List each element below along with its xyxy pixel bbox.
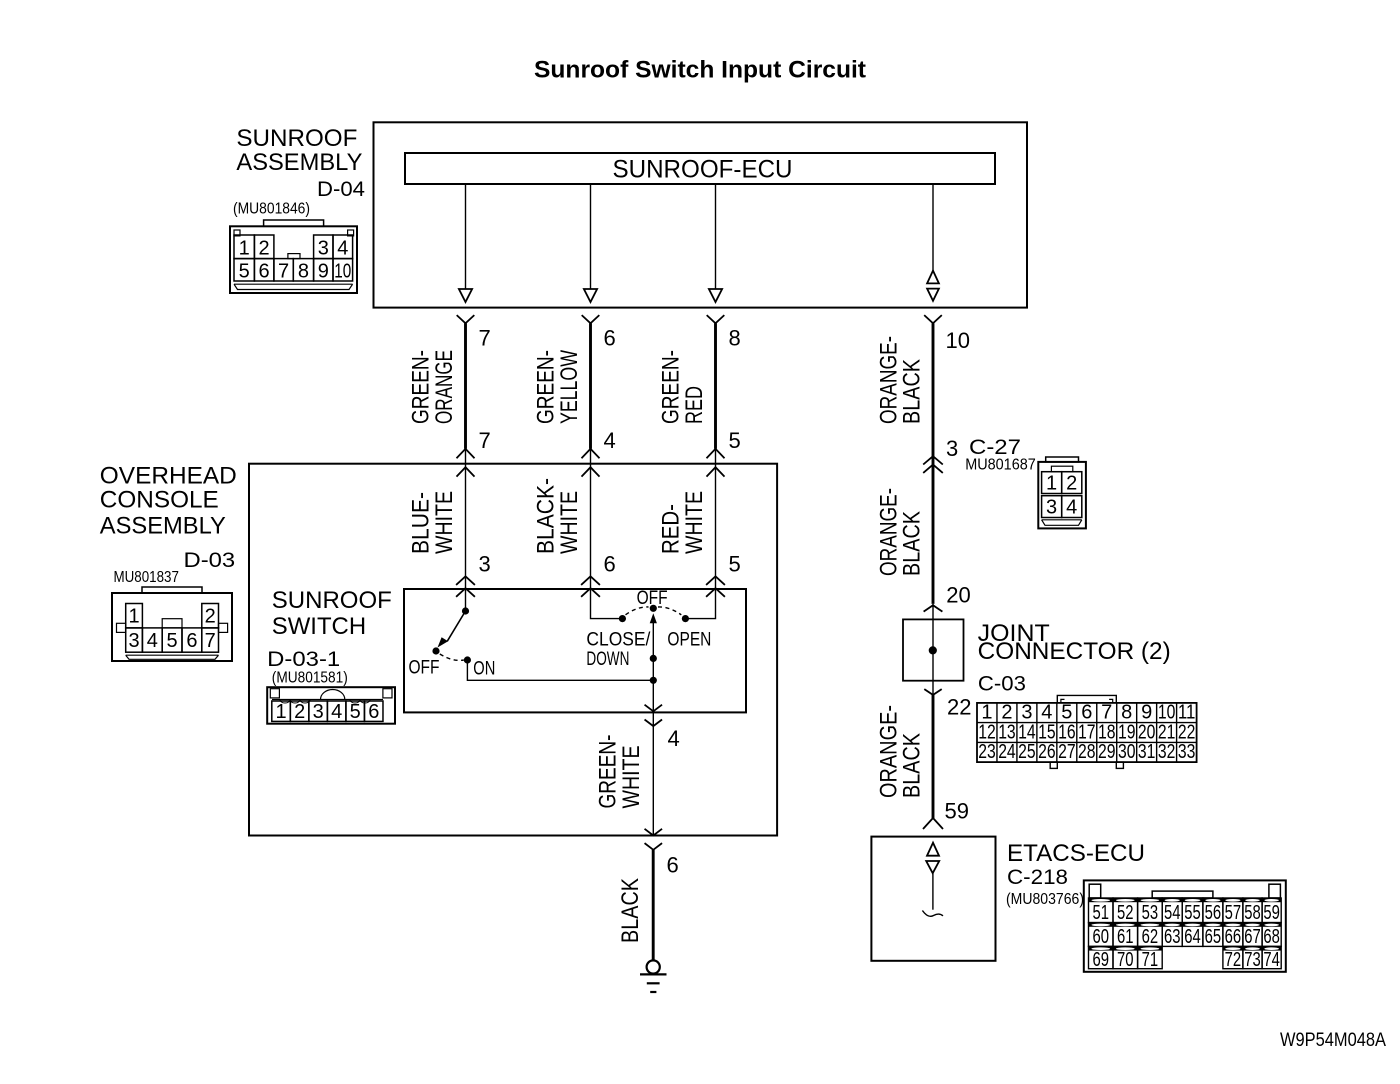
svg-text:5: 5: [729, 552, 741, 577]
svg-text:BLACK: BLACK: [899, 511, 926, 576]
svg-text:57: 57: [1225, 902, 1242, 924]
svg-text:62: 62: [1142, 926, 1159, 948]
svg-text:8: 8: [298, 261, 309, 283]
svg-text:4: 4: [668, 726, 680, 751]
svg-text:22: 22: [1178, 721, 1196, 743]
svg-text:66: 66: [1225, 926, 1242, 948]
svg-text:BLACK: BLACK: [899, 359, 926, 424]
svg-text:61: 61: [1117, 926, 1134, 948]
svg-text:64: 64: [1184, 926, 1201, 948]
svg-text:7: 7: [479, 326, 491, 351]
svg-text:3: 3: [318, 238, 329, 260]
svg-text:WHITE: WHITE: [618, 746, 645, 809]
svg-text:ETACS-ECU: ETACS-ECU: [1007, 840, 1145, 867]
svg-text:4: 4: [337, 238, 348, 260]
svg-text:6: 6: [186, 630, 197, 652]
svg-text:58: 58: [1244, 902, 1261, 924]
svg-text:SUNROOF-ECU: SUNROOF-ECU: [613, 156, 793, 184]
svg-text:RED: RED: [681, 386, 708, 424]
svg-text:59: 59: [1263, 902, 1280, 924]
svg-text:C-218: C-218: [1007, 866, 1068, 889]
svg-text:63: 63: [1164, 926, 1181, 948]
svg-text:21: 21: [1158, 721, 1176, 743]
svg-text:6: 6: [259, 261, 270, 283]
svg-text:ON: ON: [473, 659, 495, 680]
svg-text:ASSEMBLY: ASSEMBLY: [236, 149, 362, 176]
svg-text:BLACK: BLACK: [899, 733, 926, 798]
svg-text:7: 7: [205, 630, 216, 652]
svg-text:3: 3: [1046, 497, 1057, 519]
svg-text:6: 6: [604, 552, 616, 577]
svg-text:1: 1: [981, 702, 992, 724]
svg-text:10: 10: [946, 328, 970, 353]
svg-text:6: 6: [604, 326, 616, 351]
svg-text:17: 17: [1078, 721, 1096, 743]
svg-text:CONSOLE: CONSOLE: [100, 487, 219, 514]
svg-text:6: 6: [368, 701, 379, 723]
svg-text:3: 3: [1021, 702, 1032, 724]
svg-text:56: 56: [1205, 902, 1222, 924]
svg-text:SWITCH: SWITCH: [272, 613, 366, 640]
svg-text:(MU801581): (MU801581): [272, 670, 348, 687]
svg-text:4: 4: [1041, 702, 1052, 724]
svg-text:5: 5: [729, 428, 741, 453]
svg-text:59: 59: [945, 799, 969, 824]
svg-text:3: 3: [128, 630, 139, 652]
svg-text:C-03: C-03: [978, 673, 1026, 696]
svg-text:73: 73: [1244, 949, 1261, 971]
svg-text:52: 52: [1117, 902, 1134, 924]
svg-text:WHITE: WHITE: [431, 491, 458, 554]
svg-text:24: 24: [998, 741, 1016, 763]
svg-text:25: 25: [1018, 741, 1036, 763]
svg-text:YELLOW: YELLOW: [556, 350, 583, 424]
svg-text:18: 18: [1098, 721, 1116, 743]
svg-text:8: 8: [729, 326, 741, 351]
svg-text:(MU801846): (MU801846): [233, 201, 310, 218]
svg-text:15: 15: [1038, 721, 1056, 743]
svg-text:9: 9: [318, 261, 329, 283]
svg-text:10: 10: [1158, 702, 1176, 724]
svg-text:8: 8: [1121, 702, 1132, 724]
svg-text:4: 4: [1066, 497, 1077, 519]
svg-text:10: 10: [334, 261, 351, 283]
svg-text:OFF: OFF: [637, 588, 668, 609]
svg-text:DOWN: DOWN: [586, 649, 629, 670]
svg-text:29: 29: [1098, 741, 1116, 763]
svg-text:11: 11: [1178, 702, 1196, 724]
svg-text:3: 3: [479, 552, 491, 577]
svg-text:W9P54M048A: W9P54M048A: [1280, 1030, 1386, 1051]
svg-text:20: 20: [946, 583, 970, 608]
svg-text:55: 55: [1184, 902, 1201, 924]
svg-text:16: 16: [1058, 721, 1076, 743]
svg-text:68: 68: [1263, 926, 1280, 948]
svg-text:2: 2: [259, 238, 270, 260]
svg-text:7: 7: [479, 428, 491, 453]
svg-text:19: 19: [1118, 721, 1136, 743]
svg-text:D-03-1: D-03-1: [267, 648, 340, 671]
svg-text:3: 3: [946, 436, 958, 461]
svg-text:1: 1: [128, 606, 139, 628]
svg-text:12: 12: [978, 721, 996, 743]
svg-text:4: 4: [331, 701, 342, 723]
svg-text:22: 22: [947, 694, 971, 719]
svg-text:BLACK: BLACK: [617, 878, 644, 943]
svg-text:3: 3: [313, 701, 324, 723]
svg-text:9: 9: [1141, 702, 1152, 724]
svg-text:51: 51: [1093, 902, 1110, 924]
svg-text:2: 2: [1001, 702, 1012, 724]
svg-text:65: 65: [1205, 926, 1222, 948]
svg-text:SUNROOF: SUNROOF: [236, 125, 357, 152]
svg-text:5: 5: [167, 630, 178, 652]
svg-text:71: 71: [1142, 949, 1159, 971]
svg-text:53: 53: [1142, 902, 1159, 924]
svg-text:33: 33: [1178, 741, 1196, 763]
svg-text:1: 1: [1046, 473, 1057, 495]
svg-text:72: 72: [1225, 949, 1242, 971]
svg-text:13: 13: [998, 721, 1016, 743]
svg-text:7: 7: [1101, 702, 1112, 724]
svg-text:74: 74: [1263, 949, 1280, 971]
svg-text:30: 30: [1118, 741, 1136, 763]
svg-text:D-03: D-03: [184, 549, 236, 572]
svg-text:OVERHEAD: OVERHEAD: [100, 462, 237, 489]
svg-text:CONNECTOR (2): CONNECTOR (2): [978, 638, 1171, 665]
svg-text:27: 27: [1058, 741, 1076, 763]
svg-text:D-04: D-04: [317, 178, 365, 201]
svg-text:70: 70: [1117, 949, 1134, 971]
svg-text:OPEN: OPEN: [667, 630, 711, 651]
svg-text:31: 31: [1138, 741, 1156, 763]
svg-text:OFF: OFF: [409, 658, 440, 679]
svg-text:14: 14: [1018, 721, 1036, 743]
svg-text:60: 60: [1093, 926, 1110, 948]
svg-text:20: 20: [1138, 721, 1156, 743]
svg-text:2: 2: [1066, 473, 1077, 495]
svg-text:(MU803766): (MU803766): [1006, 891, 1084, 908]
svg-text:4: 4: [147, 630, 158, 652]
svg-text:MU801837: MU801837: [114, 569, 179, 586]
svg-text:32: 32: [1158, 741, 1176, 763]
svg-text:WHITE: WHITE: [681, 491, 708, 554]
svg-text:28: 28: [1078, 741, 1096, 763]
svg-text:MU801687: MU801687: [965, 456, 1036, 473]
svg-text:4: 4: [604, 428, 616, 453]
svg-text:23: 23: [978, 741, 996, 763]
svg-text:SUNROOF: SUNROOF: [272, 587, 392, 614]
svg-text:7: 7: [278, 261, 289, 283]
svg-text:26: 26: [1038, 741, 1056, 763]
svg-text:ORANGE: ORANGE: [431, 350, 458, 424]
svg-text:1: 1: [239, 238, 250, 260]
svg-text:1: 1: [276, 701, 287, 723]
svg-text:WHITE: WHITE: [556, 491, 583, 554]
svg-text:6: 6: [667, 853, 679, 878]
svg-text:2: 2: [294, 701, 305, 723]
svg-text:69: 69: [1093, 949, 1110, 971]
svg-text:5: 5: [350, 701, 361, 723]
svg-text:6: 6: [1081, 702, 1092, 724]
svg-text:5: 5: [239, 261, 250, 283]
svg-text:67: 67: [1244, 926, 1261, 948]
svg-text:Sunroof Switch Input Circuit: Sunroof Switch Input Circuit: [534, 57, 866, 84]
svg-text:2: 2: [205, 606, 216, 628]
svg-text:5: 5: [1061, 702, 1072, 724]
svg-text:ASSEMBLY: ASSEMBLY: [100, 513, 226, 540]
svg-text:CLOSE/: CLOSE/: [586, 630, 651, 651]
svg-text:54: 54: [1164, 902, 1181, 924]
